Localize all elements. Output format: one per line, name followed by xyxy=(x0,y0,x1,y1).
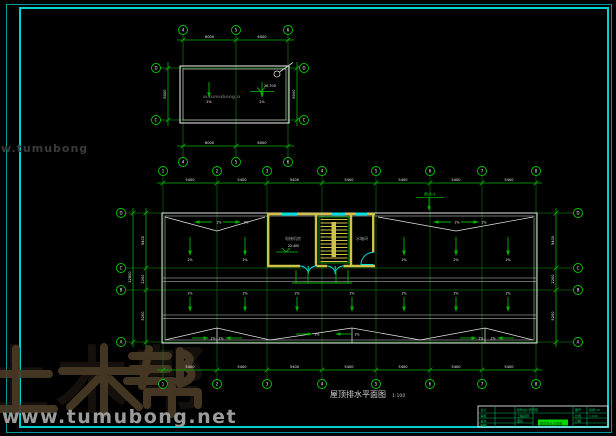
dim-text: 2200 xyxy=(141,274,145,284)
dim-text: 5400 xyxy=(451,365,461,369)
tb-draw-label: 制图 xyxy=(481,423,487,428)
dim-text: 5200 xyxy=(551,311,555,321)
grid-bubble-label: 7 xyxy=(481,168,484,173)
tb-check-label: 审核 xyxy=(481,413,487,418)
room-label-tank-room: 水箱间 xyxy=(356,235,368,241)
grid-bubble-label: 3 xyxy=(266,168,269,173)
room-label-machine-room: 电梯机房 xyxy=(285,235,301,241)
slope-label: 2% xyxy=(490,337,495,341)
slope-label: 2% xyxy=(354,333,359,337)
grid-bubble-label: 6 xyxy=(429,381,432,386)
tb-project-label: 工程名称 xyxy=(517,413,529,418)
tb-sheet-label: 图名 xyxy=(517,418,523,423)
cad-canvas: { "colors": { "frame_cyan": "#00d2d2", "… xyxy=(0,0,616,436)
dimension-chains: 6000600060006000600060005400540054005400… xyxy=(128,35,558,372)
slope-label: 2% xyxy=(206,100,212,104)
dim-text: 5400 xyxy=(185,178,195,182)
dim-text: 6000 xyxy=(292,89,296,99)
dim-text: 6000 xyxy=(163,89,167,99)
slope-label: 2% xyxy=(454,221,459,225)
penthouse-doors xyxy=(300,253,373,275)
tb-no: 建施-12 xyxy=(589,407,600,412)
elevation-value: 22.400 xyxy=(288,244,299,248)
leader-label: 雨水斗 xyxy=(424,191,436,197)
grid-bubble-label: B xyxy=(120,287,123,292)
slope-label: 2% xyxy=(294,292,299,296)
dim-text: 5400 xyxy=(504,365,514,369)
grid-bubble-label: D xyxy=(302,65,305,70)
dim-text: 5400 xyxy=(504,178,514,182)
grid-bubble-label: 5 xyxy=(235,159,238,164)
dim-text: 6000 xyxy=(257,35,267,39)
side-watermark-text: w.tumubong xyxy=(1,142,88,155)
grid-bubble-label: 1 xyxy=(162,168,165,173)
dim-text: 5400 xyxy=(290,178,300,182)
slope-label: 2% xyxy=(243,221,248,225)
slope-label: 2% xyxy=(505,258,510,262)
grid-bubble-label: C xyxy=(577,265,580,270)
slope-label: 2% xyxy=(242,292,247,296)
penthouse-roof-plan: 2% 2% 26.700 w.tumubong.n xyxy=(161,35,300,158)
slope-label: 2% xyxy=(242,258,247,262)
slope-label: 2% xyxy=(478,337,483,341)
inner-watermark-text: w.tumubong.n xyxy=(203,94,240,100)
dim-text: 5400 xyxy=(398,178,408,182)
grid-bubble-label: 6 xyxy=(287,27,290,32)
tb-scale: 1:100 xyxy=(589,414,598,418)
slope-label: 2% xyxy=(187,292,192,296)
grid-bubble-label: A xyxy=(120,339,123,344)
tb-design-label: 设计 xyxy=(481,407,487,412)
dim-text: 5400 xyxy=(185,365,195,369)
elevation-triangle xyxy=(257,88,265,92)
cad-sheet: 土木帮 2% 2% 26.700 w.tumubong.n xyxy=(0,0,616,436)
stair xyxy=(319,217,349,263)
tb-no-label: 图号 xyxy=(575,407,581,412)
grid-bubble-label: 8 xyxy=(535,168,538,173)
grid-bubble-label: 1 xyxy=(162,381,165,386)
grid-bubble-label: D xyxy=(154,65,157,70)
double-door-symbol xyxy=(327,266,343,274)
slope-label: 2% xyxy=(505,292,510,296)
dim-text: 5200 xyxy=(141,311,145,321)
tb-company: 建筑设计研究院 xyxy=(517,407,538,412)
slope-label: 2% xyxy=(210,337,215,341)
roof-gutters xyxy=(163,278,536,319)
tb-scale-label: 比例 xyxy=(575,413,581,418)
slope-label: 2% xyxy=(218,337,223,341)
grid-bubble-label: 6 xyxy=(429,168,432,173)
elevation-value: 26.700 xyxy=(264,84,276,88)
slope-label: 2% xyxy=(401,292,406,296)
grid-bubble-label: 5 xyxy=(375,168,378,173)
grid-bubble-label: A xyxy=(577,339,580,344)
grid-bubble-label: 6 xyxy=(287,159,290,164)
dim-text: 5400 xyxy=(344,365,354,369)
grid-bubble-label: D xyxy=(119,210,122,215)
tb-date-label: 日期 xyxy=(575,418,581,423)
dim-text: 5400 xyxy=(237,365,247,369)
slope-label: 2% xyxy=(453,258,458,262)
dim-text: 5400 xyxy=(451,178,461,182)
dim-text: 6000 xyxy=(205,141,215,145)
grid-bubble-label: 4 xyxy=(321,381,324,386)
slope-label: 2% xyxy=(349,292,354,296)
grid-bubble-label: 5 xyxy=(375,381,378,386)
dim-text: 5400 xyxy=(344,178,354,182)
grid-bubble-label: C xyxy=(155,117,158,122)
grid-bubble-label: 2 xyxy=(216,381,219,386)
slope-label: 2% xyxy=(481,221,486,225)
slope-label: 2% xyxy=(314,333,319,337)
elevation-triangle xyxy=(282,248,290,252)
grid-bubble-label: 4 xyxy=(182,27,185,32)
grid-bubble-label: C xyxy=(303,117,306,122)
dim-text: 5400 xyxy=(398,365,408,369)
slope-label: 2% xyxy=(453,292,458,296)
dim-text: 5400 xyxy=(290,365,300,369)
slope-label: 2% xyxy=(187,258,192,262)
door-symbol xyxy=(361,253,373,265)
grid-bubble-label: C xyxy=(120,265,123,270)
slope-label: 2% xyxy=(216,221,221,225)
grid-bubble-label: 2 xyxy=(216,168,219,173)
dim-text: 5400 xyxy=(551,235,555,245)
grid-bubble-label: 7 xyxy=(481,381,484,386)
grid-bubble-label: 5 xyxy=(235,27,238,32)
tb-proof-label: 校对 xyxy=(481,418,487,423)
grid-bubble-label: 4 xyxy=(321,168,324,173)
tb-sheet-name: 屋顶排水平面图 xyxy=(540,421,562,426)
dim-text: 6000 xyxy=(205,35,215,39)
title-block: 设计 建筑设计研究院 图号 建施-12 审核 校对 制图 工程名称 图名 比例 … xyxy=(478,406,608,428)
detail-index-circle xyxy=(274,71,280,77)
url-watermark-text: www.tumubong.net xyxy=(2,406,237,428)
dim-text: 5400 xyxy=(237,178,247,182)
dim-text: 6000 xyxy=(257,141,267,145)
grid-bubble-label: 4 xyxy=(182,159,185,164)
grid-bubble-label: 8 xyxy=(535,381,538,386)
title-block-texts: 设计 建筑设计研究院 图号 建施-12 审核 校对 制图 工程名称 图名 比例 … xyxy=(481,407,600,428)
stair-newel xyxy=(332,222,337,257)
grid-bubble-label: D xyxy=(576,210,579,215)
grid-bubble-label: B xyxy=(577,287,580,292)
drawing-scale: 1:100 xyxy=(392,393,405,399)
drawing-title: 屋顶排水平面图 xyxy=(330,389,386,399)
dim-text: 5400 xyxy=(141,235,145,245)
slope-label: 2% xyxy=(401,258,406,262)
slope-label: 2% xyxy=(259,100,265,104)
dim-text: 2200 xyxy=(551,274,555,284)
dim-text: 12800 xyxy=(128,271,132,283)
grid-bubble-label: 3 xyxy=(266,381,269,386)
